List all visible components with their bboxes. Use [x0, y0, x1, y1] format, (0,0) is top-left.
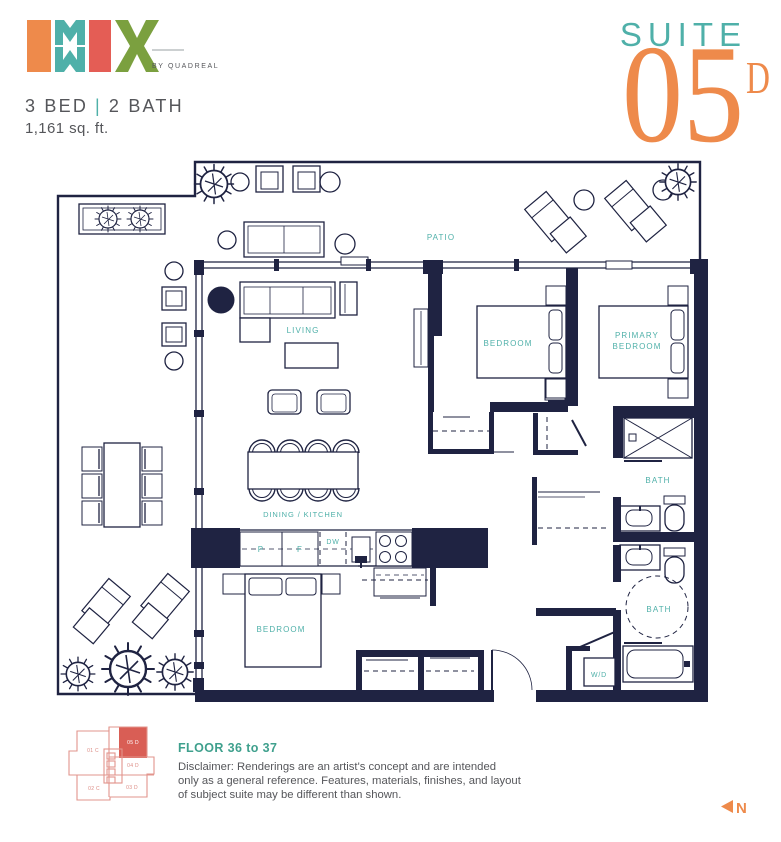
logo-m-lower	[55, 47, 85, 72]
patio-stool	[231, 173, 249, 191]
dining-chair	[277, 440, 303, 453]
door-leaf	[580, 631, 617, 647]
suite-right-wall	[694, 262, 708, 702]
hall-closets	[356, 650, 484, 693]
plant-icon	[102, 643, 154, 695]
outdoor-dining-chair	[82, 474, 102, 498]
outdoor-dining-set	[82, 443, 162, 527]
living-room: LIVING	[208, 282, 429, 414]
shower	[624, 418, 692, 458]
outdoor-dining-chair	[142, 447, 162, 471]
outdoor-dining-chair	[82, 447, 102, 471]
plant-icon	[195, 165, 234, 204]
laundry-closet: W/D	[536, 608, 617, 690]
patio-stool	[335, 234, 355, 254]
dining-area: DINING / KITCHEN	[248, 440, 359, 519]
brand-logo: BY QUADREAL	[27, 20, 219, 72]
patio-stool	[165, 352, 183, 370]
plant-icon	[157, 654, 193, 690]
logo-m-upper	[55, 20, 85, 45]
window-mullion	[274, 259, 279, 271]
closet	[428, 412, 514, 454]
lounge-chair	[70, 578, 132, 643]
dining-table	[248, 452, 358, 489]
dining-chair	[277, 488, 303, 501]
round-side-table	[208, 287, 235, 314]
outdoor-dining-chair	[82, 501, 102, 525]
dining-chair	[305, 488, 331, 501]
nightstand	[546, 379, 566, 398]
wall-partition	[613, 532, 708, 542]
patio-chair	[256, 166, 283, 192]
tall-cabinet	[414, 309, 428, 367]
wall-partition	[613, 406, 708, 418]
window-mullion	[194, 662, 204, 669]
room-label-bedroom: BEDROOM	[483, 339, 532, 348]
room-label-bath-bottom: BATH	[646, 605, 671, 614]
disclaimer-line-1: Disclaimer: Renderings are an artist's c…	[178, 761, 496, 773]
toilet	[664, 496, 685, 531]
label-dishwasher: DW	[326, 539, 339, 546]
dining-chair	[333, 440, 359, 453]
outdoor-dining-table	[104, 443, 140, 527]
wall-partition	[566, 268, 578, 406]
accent-chair	[340, 282, 357, 315]
window-mullion	[194, 630, 204, 637]
coffee-table	[285, 343, 338, 368]
patio-chair	[162, 323, 186, 346]
door-swing-arc	[492, 650, 532, 690]
north-arrow-icon	[721, 800, 733, 813]
bedroom-top: BEDROOM	[477, 286, 566, 398]
lounge-chair	[605, 179, 667, 244]
suite-left-wall	[191, 268, 205, 692]
window-mullion	[194, 488, 204, 495]
outdoor-dining-chair	[142, 474, 162, 498]
window-sill	[606, 261, 632, 269]
nightstand	[668, 286, 688, 305]
primary-bedroom: PRIMARY BEDROOM	[599, 286, 688, 398]
plant-icon	[95, 206, 121, 232]
armchair	[317, 390, 350, 414]
north-label: N	[736, 800, 747, 817]
spec-beds: 3 BED	[25, 96, 88, 116]
wall-corner	[193, 678, 204, 692]
keyplan: 01 C 05 D 04 D 02 C 03 D	[69, 727, 154, 800]
bedroom-bottom: BEDROOM	[223, 566, 484, 693]
tub-faucet	[684, 661, 690, 667]
label-pantry: P	[258, 545, 264, 554]
window-mullion	[514, 259, 519, 271]
suite-number: 05	[622, 17, 744, 172]
window-mullion	[366, 259, 371, 271]
spec-line: 3 BED|2 BATH	[25, 96, 184, 116]
keyplan-label-04d: 04 D	[127, 763, 139, 769]
room-label-primary-1: PRIMARY	[615, 331, 659, 340]
disclaimer-line-2: only as a general reference. Features, m…	[178, 775, 522, 787]
room-label-dining-kitchen: DINING / KITCHEN	[263, 510, 343, 519]
logo-bar-left	[27, 20, 51, 72]
spec-separator: |	[95, 96, 102, 116]
room-label-living: LIVING	[287, 326, 320, 335]
wall-partition	[428, 336, 434, 412]
wall-partition	[428, 268, 442, 336]
window-mullion	[194, 410, 204, 417]
keyplan-label-02c: 02 C	[88, 786, 100, 792]
patio-sofa	[244, 222, 324, 257]
room-label-bedroom-bottom: BEDROOM	[256, 625, 305, 634]
logo-bar-right	[89, 20, 111, 72]
room-label-primary-2: BEDROOM	[612, 342, 661, 351]
bed	[245, 574, 321, 667]
patio-chair	[293, 166, 320, 192]
vanity-sink	[620, 545, 660, 570]
keyplan-label-05d: 05 D	[127, 740, 139, 746]
kitchen-peninsula	[374, 568, 426, 596]
spec-area: 1,161 sq. ft.	[25, 120, 109, 137]
entry-door	[492, 650, 532, 690]
primary-bath: BATH	[613, 406, 708, 535]
outdoor-dining-chair	[142, 501, 162, 525]
patio-stool	[165, 262, 183, 280]
disclaimer-line-3: of subject suite may be different than s…	[178, 789, 401, 801]
room-label-patio: PATIO	[427, 233, 455, 242]
keyplan-label-01c: 01 C	[87, 748, 99, 754]
suite-letter: D	[746, 52, 770, 103]
kitchen-sink	[352, 537, 370, 568]
label-washer-dryer: W/D	[591, 672, 607, 679]
nightstand	[668, 379, 688, 398]
keyplan-label-03d: 03 D	[126, 785, 138, 791]
suite-bottom-wall	[195, 690, 494, 702]
patio-left-furniture	[61, 262, 193, 695]
room-label-bath-top: BATH	[645, 476, 670, 485]
patio-planter	[79, 204, 165, 234]
nightstand	[322, 574, 340, 594]
patio-side-table	[574, 190, 594, 210]
dining-chair	[249, 488, 275, 501]
wall-partition	[490, 402, 568, 412]
floorplan-sheet: BY QUADREAL 3 BED|2 BATH 1,161 sq. ft. S…	[0, 0, 781, 842]
lounge-chair	[129, 573, 191, 638]
wall-partition	[566, 646, 572, 690]
window-sill	[341, 257, 368, 265]
window-mullion	[194, 330, 204, 337]
dining-chair	[305, 440, 331, 453]
counter-end	[412, 528, 488, 568]
suite-bottom-wall	[536, 690, 708, 702]
bathtub	[623, 646, 693, 682]
patio-chair	[162, 287, 186, 310]
vanity-sink	[620, 506, 660, 531]
hall-shelves	[532, 477, 606, 545]
dining-chair	[333, 488, 359, 501]
label-fridge: F	[297, 545, 303, 554]
north-arrow: N	[721, 800, 747, 817]
plant-icon	[61, 657, 95, 691]
nightstand	[223, 574, 247, 594]
dining-chair	[249, 440, 275, 453]
counter-end	[191, 528, 240, 568]
logo-byline: BY QUADREAL	[152, 63, 219, 70]
cooktop	[376, 532, 412, 566]
patio-stool	[320, 172, 340, 192]
nightstand	[546, 286, 566, 305]
floor-range: FLOOR 36 to 37	[178, 741, 277, 755]
suite-top-wall	[194, 257, 708, 275]
patio-top-furniture	[195, 164, 697, 257]
patio-stool	[218, 231, 236, 249]
wall-partition	[536, 608, 616, 616]
wall-partition	[613, 406, 623, 458]
lounge-chair	[525, 190, 587, 255]
second-bath: BATH	[613, 545, 693, 692]
plant-icon	[127, 206, 153, 232]
door-leaf	[572, 420, 586, 446]
spec-baths: 2 BATH	[109, 96, 184, 116]
armchair	[268, 390, 301, 414]
